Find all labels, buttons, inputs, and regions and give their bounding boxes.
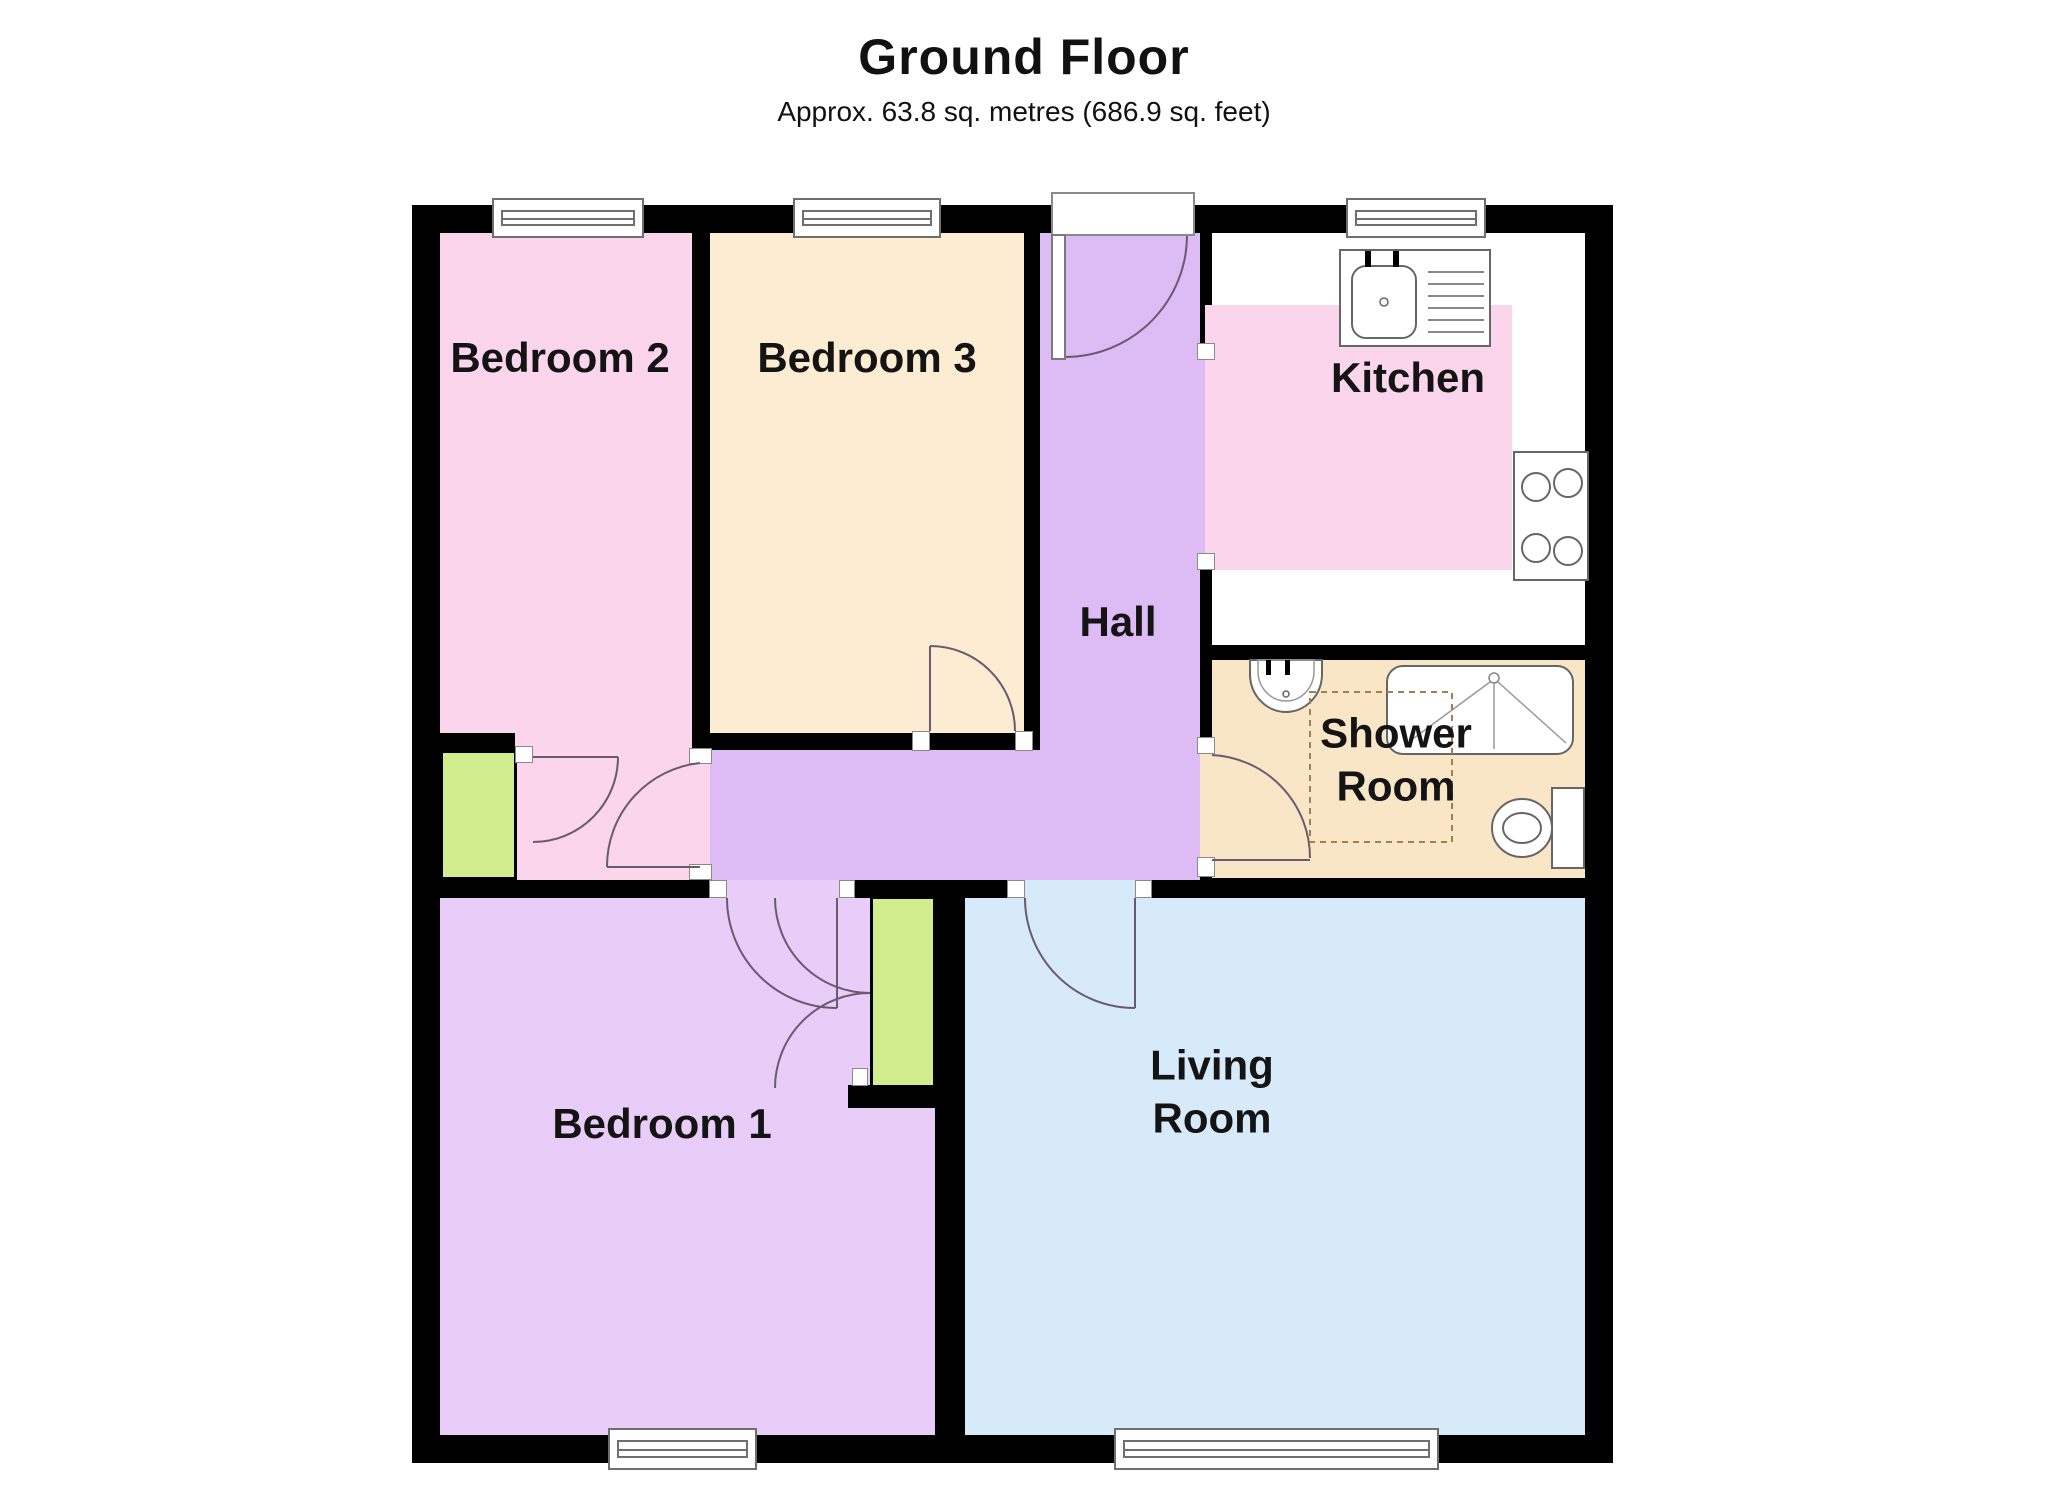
bedroom1-doorway xyxy=(727,880,839,898)
room-label-kitchen: Kitchen xyxy=(1331,352,1485,405)
jamb xyxy=(912,731,930,751)
room-bedroom-3 xyxy=(710,233,1024,733)
entry-door-leaf xyxy=(1051,234,1066,360)
storage-closet-bedroom1 xyxy=(870,896,936,1088)
jamb xyxy=(689,864,712,880)
room-bedroom-2 xyxy=(440,233,692,750)
storage-closet-left xyxy=(440,750,517,880)
floor-plan-page: Ground Floor Approx. 63.8 sq. metres (68… xyxy=(0,0,2048,1489)
jamb xyxy=(1135,880,1152,898)
window-kitchen-icon xyxy=(1346,198,1486,238)
page-title: Ground Floor xyxy=(0,28,2048,86)
room-living xyxy=(965,898,1585,1435)
jamb xyxy=(709,880,727,898)
living-label-line2: Room xyxy=(1150,1092,1274,1145)
jamb xyxy=(1197,553,1215,570)
room-label-shower-room: Shower Room xyxy=(1320,708,1472,813)
jamb xyxy=(839,880,855,898)
jamb xyxy=(1197,857,1215,877)
window-living-icon xyxy=(1114,1428,1439,1470)
room-bedroom-1 xyxy=(440,898,935,1435)
jamb xyxy=(1015,731,1033,751)
jamb xyxy=(852,1068,868,1086)
kitchen-counter xyxy=(1205,305,1512,570)
window-bedroom1-icon xyxy=(608,1428,757,1470)
living-label-line1: Living xyxy=(1150,1040,1274,1093)
room-label-hall: Hall xyxy=(1079,596,1156,649)
entry-door-opening xyxy=(1051,192,1195,236)
room-label-bedroom-3: Bedroom 3 xyxy=(757,332,976,385)
jamb xyxy=(689,748,712,764)
shower-label-line1: Shower xyxy=(1320,708,1472,761)
window-bedroom2-icon xyxy=(492,198,644,238)
page-subtitle: Approx. 63.8 sq. metres (686.9 sq. feet) xyxy=(0,96,2048,128)
shower-label-line2: Room xyxy=(1320,760,1472,813)
room-hall-passage xyxy=(710,750,1040,880)
title-block: Ground Floor Approx. 63.8 sq. metres (68… xyxy=(0,0,2048,128)
jamb xyxy=(1197,343,1215,360)
living-doorway xyxy=(1025,880,1135,898)
jamb xyxy=(515,746,533,763)
room-label-bedroom-2: Bedroom 2 xyxy=(450,332,669,385)
jamb xyxy=(1197,737,1215,754)
room-label-bedroom-1: Bedroom 1 xyxy=(552,1098,771,1151)
window-bedroom3-icon xyxy=(793,198,941,238)
room-label-living-room: Living Room xyxy=(1150,1040,1274,1145)
jamb xyxy=(1007,880,1025,898)
room-bedroom-2-alcove xyxy=(517,750,710,880)
shower-doorway xyxy=(1200,753,1212,857)
wall-stub-closet-bedroom1 xyxy=(848,1085,965,1108)
